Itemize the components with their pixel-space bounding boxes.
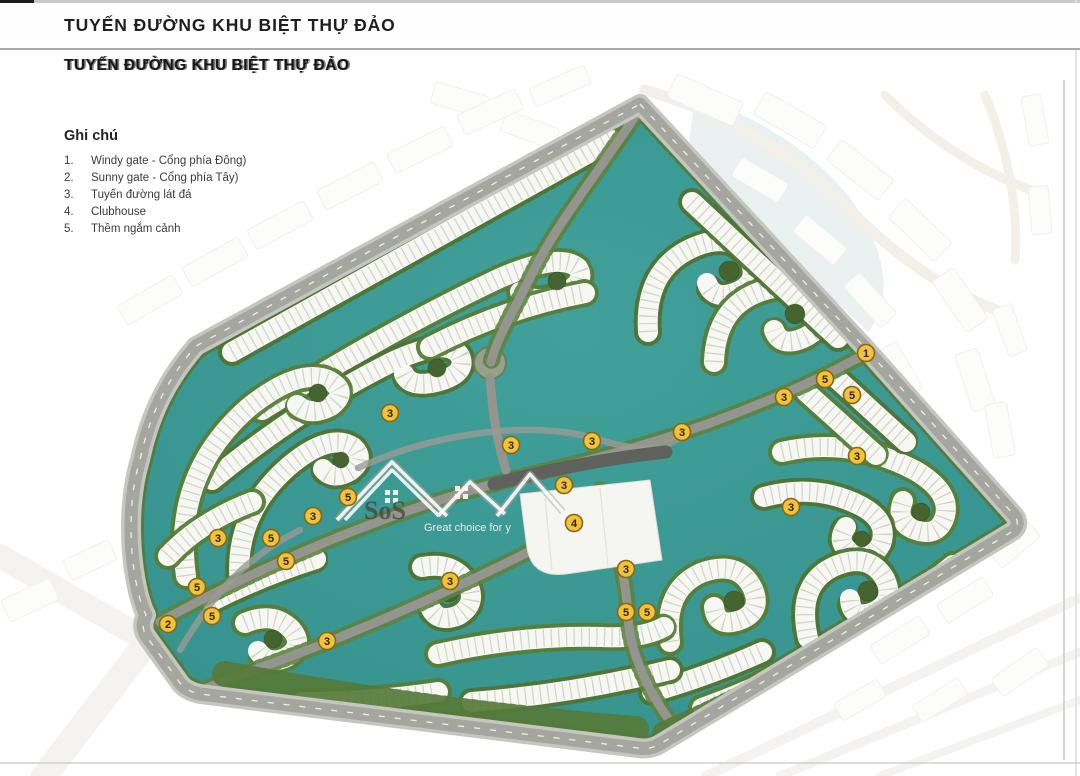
svg-text:3: 3 [623, 564, 629, 576]
map-marker-1-0: 1 [858, 345, 875, 362]
svg-text:5: 5 [849, 390, 855, 402]
map-marker-3-11: 3 [210, 530, 227, 547]
svg-text:3: 3 [854, 451, 860, 463]
map-marker-5-16: 5 [817, 371, 834, 388]
legend-item-number: 5. [64, 221, 91, 238]
map-marker-5-24: 5 [639, 604, 656, 621]
svg-text:2: 2 [165, 619, 171, 631]
legend-item-5: 5. Thềm ngắm cảnh [64, 221, 246, 238]
svg-text:3: 3 [561, 480, 567, 492]
map-marker-3-3: 3 [503, 437, 520, 454]
svg-text:3: 3 [310, 511, 316, 523]
svg-text:3: 3 [589, 436, 595, 448]
svg-text:5: 5 [268, 533, 274, 545]
map-marker-5-19: 5 [263, 530, 280, 547]
svg-text:5: 5 [345, 492, 351, 504]
svg-text:3: 3 [215, 533, 221, 545]
legend-item-3: 3. Tuyến đường lát đá [64, 187, 246, 204]
map-marker-5-23: 5 [618, 604, 635, 621]
svg-text:3: 3 [324, 636, 330, 648]
map-marker-5-22: 5 [204, 608, 221, 625]
map-marker-3-12: 3 [442, 573, 459, 590]
subheader-title: TUYẾN ĐƯỜNG KHU BIỆT THỰ ĐẢO [64, 57, 349, 75]
legend-item-4: 4. Clubhouse [64, 204, 246, 221]
legend-item-number: 1. [64, 153, 91, 170]
legend-title: Ghi chú [64, 128, 246, 144]
map-marker-3-9: 3 [305, 508, 322, 525]
legend: Ghi chú 1. Windy gate - Cổng phía Đông) … [64, 128, 246, 238]
clubhouse-area [520, 480, 662, 574]
map-marker-3-8: 3 [556, 477, 573, 494]
header-bar: TUYẾN ĐƯỜNG KHU BIỆT THỰ ĐẢO [0, 3, 1080, 50]
map-marker-3-13: 3 [618, 561, 635, 578]
map-marker-2-1: 2 [160, 616, 177, 633]
svg-text:5: 5 [822, 374, 828, 386]
svg-text:1: 1 [863, 348, 869, 360]
legend-item-label: Clubhouse [91, 204, 146, 221]
svg-text:3: 3 [508, 440, 514, 452]
svg-text:3: 3 [788, 502, 794, 514]
map-marker-3-14: 3 [319, 633, 336, 650]
map-marker-5-21: 5 [189, 579, 206, 596]
legend-item-2: 2. Sunny gate - Cổng phía Tây) [64, 170, 246, 187]
svg-text:5: 5 [644, 607, 650, 619]
legend-item-number: 4. [64, 204, 91, 221]
map-marker-3-6: 3 [776, 389, 793, 406]
legend-item-label: Thềm ngắm cảnh [91, 221, 181, 238]
svg-text:5: 5 [194, 582, 200, 594]
svg-text:5: 5 [623, 607, 629, 619]
site-plan-map: SoS Great choice for y 12333333333333345… [0, 0, 1080, 776]
legend-item-label: Tuyến đường lát đá [91, 187, 192, 204]
svg-text:3: 3 [447, 576, 453, 588]
watermark-tagline: Great choice for y [424, 522, 511, 534]
page: SoS Great choice for y 12333333333333345… [0, 0, 1080, 776]
map-marker-3-4: 3 [584, 433, 601, 450]
page-title: TUYẾN ĐƯỜNG KHU BIỆT THỰ ĐẢO [64, 15, 396, 36]
svg-text:5: 5 [283, 556, 289, 568]
map-marker-3-7: 3 [849, 448, 866, 465]
map-marker-3-5: 3 [674, 424, 691, 441]
legend-item-1: 1. Windy gate - Cổng phía Đông) [64, 153, 246, 170]
map-marker-3-2: 3 [382, 405, 399, 422]
svg-text:5: 5 [209, 611, 215, 623]
map-marker-4-15: 4 [566, 515, 583, 532]
svg-text:3: 3 [781, 392, 787, 404]
legend-item-label: Sunny gate - Cổng phía Tây) [91, 170, 238, 187]
svg-text:3: 3 [387, 408, 393, 420]
map-marker-5-20: 5 [278, 553, 295, 570]
map-marker-5-18: 5 [340, 489, 357, 506]
map-marker-5-17: 5 [844, 387, 861, 404]
svg-text:4: 4 [571, 518, 578, 530]
legend-item-number: 2. [64, 170, 91, 187]
watermark-brand: SoS [364, 496, 406, 525]
legend-item-label: Windy gate - Cổng phía Đông) [91, 153, 246, 170]
legend-item-number: 3. [64, 187, 91, 204]
svg-text:3: 3 [679, 427, 685, 439]
map-marker-3-10: 3 [783, 499, 800, 516]
